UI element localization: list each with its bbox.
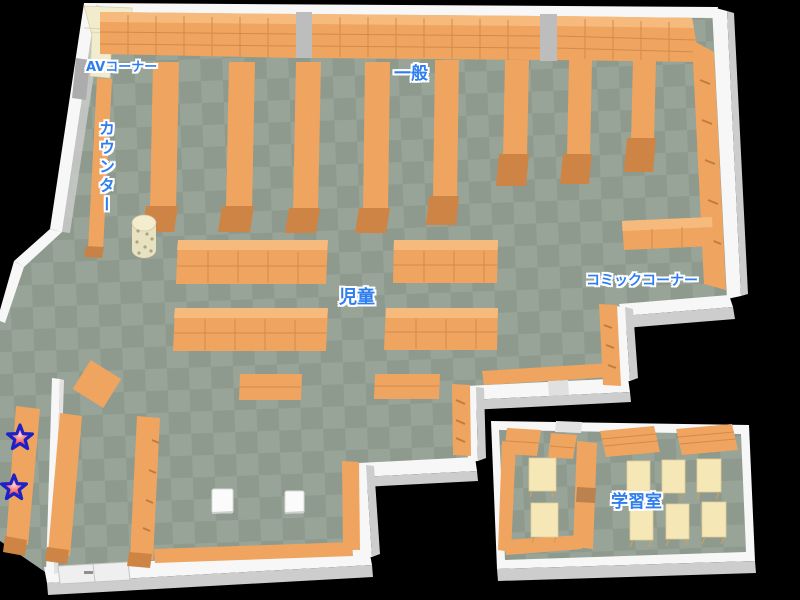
area-label-children: 児童 — [339, 283, 375, 309]
display-cylinder — [132, 215, 156, 258]
stool — [285, 491, 304, 513]
area-label-comic-corner: コミックコーナー — [586, 270, 698, 290]
area-label-general: 一般 — [394, 59, 428, 84]
entrance-door — [58, 562, 130, 584]
wall-pillar — [540, 14, 557, 61]
stool — [212, 489, 233, 513]
study-table — [529, 458, 556, 491]
library-floor-map: AVコーナー 一般 カウンター 児童 コミックコーナー 学習室 — [0, 0, 800, 600]
area-label-av-corner: AVコーナー — [86, 56, 157, 75]
study-table — [531, 503, 558, 537]
area-label-counter: カウンター — [93, 120, 117, 215]
floor-plan-canvas — [0, 0, 800, 600]
study-table — [697, 459, 721, 492]
wall-pillar — [296, 12, 312, 58]
study-table — [702, 502, 726, 537]
study-table — [666, 504, 689, 539]
area-label-study-room: 学習室 — [611, 487, 662, 512]
study-table — [662, 460, 685, 493]
